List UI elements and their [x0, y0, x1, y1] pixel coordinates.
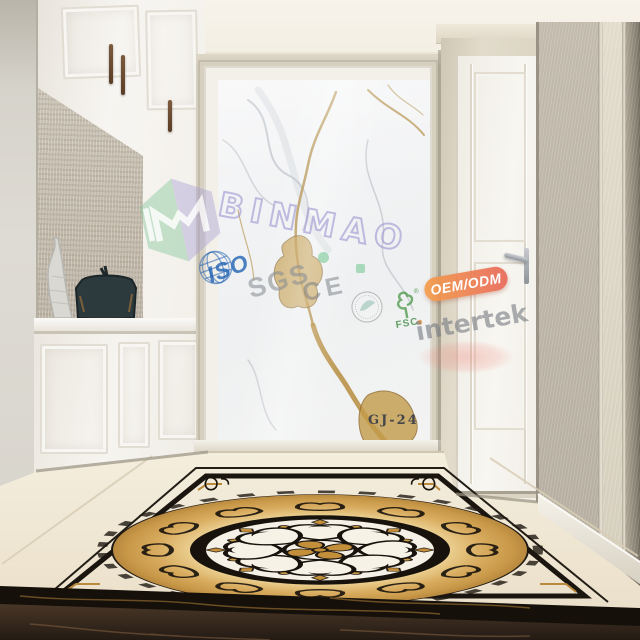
interior-product-photo: BINMAO ISO SGS CE [0, 0, 640, 640]
door-panel [474, 72, 526, 242]
marble-panel-frame [198, 60, 438, 454]
cabinet-handle [121, 55, 125, 95]
door-handle-plate [524, 248, 529, 284]
lower-cabinet-door [118, 342, 150, 448]
counter-decor [38, 236, 142, 322]
box-finial [101, 266, 107, 276]
upper-cabinet-door [145, 10, 199, 111]
lower-cabinet-door [40, 344, 108, 454]
cabinet-handle [109, 44, 113, 84]
decor-box [76, 276, 136, 319]
floor [0, 440, 640, 640]
upper-cabinet-door [61, 5, 141, 80]
center-pinwheel [287, 541, 353, 559]
marble-panel-frame-inner [204, 66, 432, 448]
vase [48, 238, 72, 318]
decor-graphic [38, 236, 142, 322]
lower-cabinet-door [158, 340, 200, 440]
glass-reflection [218, 80, 430, 446]
door-panel [474, 262, 526, 430]
cabinet-handle [168, 100, 172, 132]
marble-panel [218, 80, 430, 446]
counter-top [34, 318, 208, 334]
door-groove [470, 64, 472, 484]
